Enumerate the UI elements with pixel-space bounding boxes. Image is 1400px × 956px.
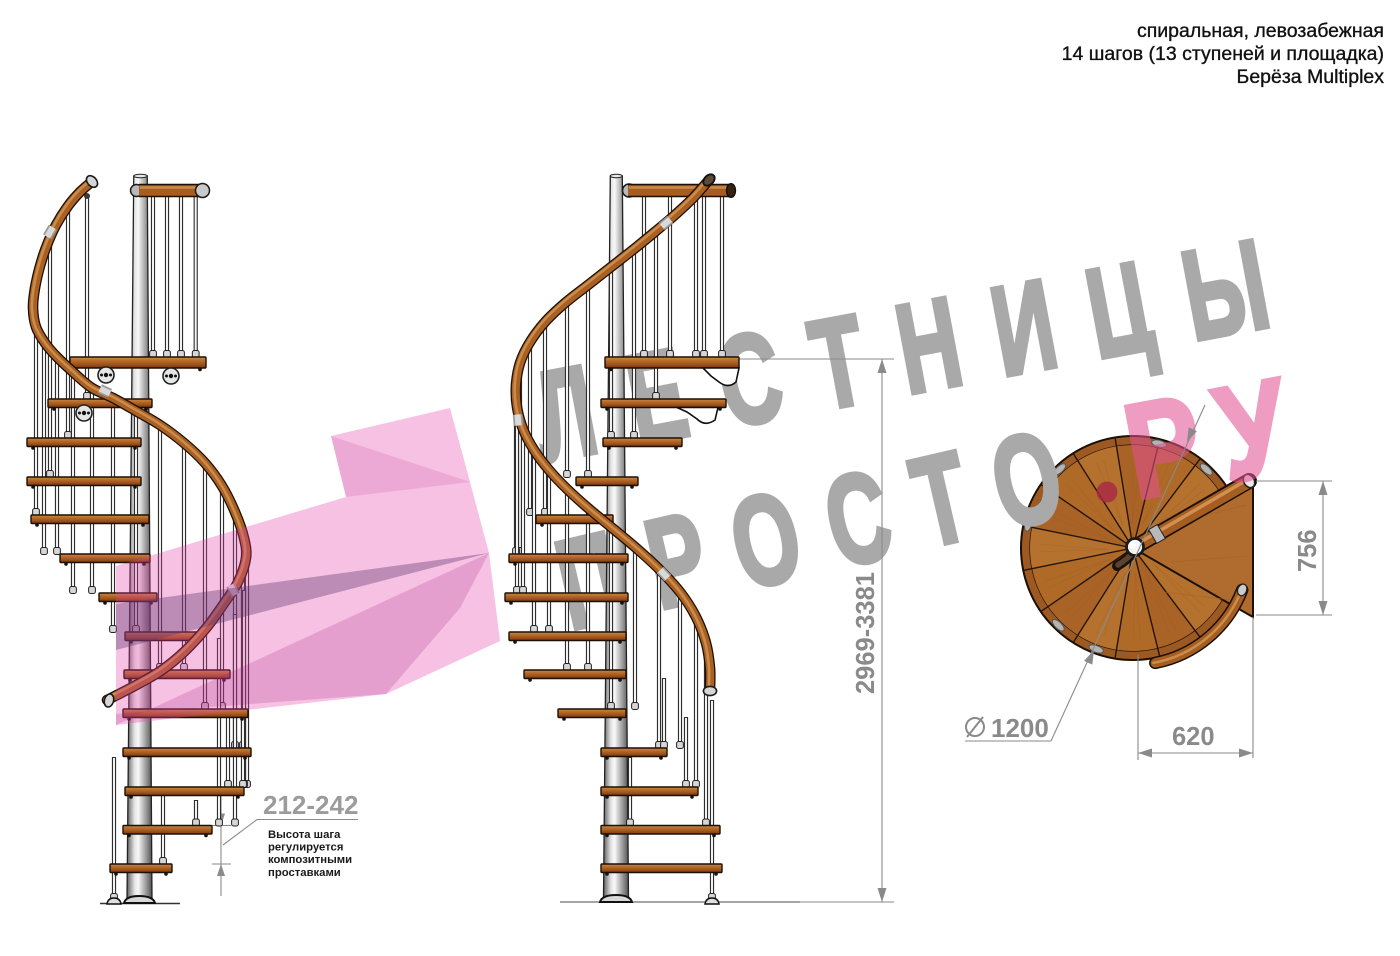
svg-text:1200: 1200 [991, 713, 1049, 743]
svg-text:Берёза Multiplex: Берёза Multiplex [1237, 66, 1385, 88]
svg-text:проставками: проставками [268, 867, 341, 879]
svg-text:620: 620 [1172, 723, 1215, 751]
svg-text:756: 756 [1294, 529, 1322, 572]
svg-text:14 шагов (13 ступеней и площад: 14 шагов (13 ступеней и площадка) [1062, 43, 1384, 65]
svg-text:спиральная, левозабежная: спиральная, левозабежная [1137, 20, 1384, 42]
svg-text:212-242: 212-242 [263, 790, 358, 820]
svg-text:композитными: композитными [268, 854, 352, 866]
svg-text:РУ: РУ [1114, 346, 1321, 527]
svg-text:регулируется: регулируется [268, 842, 343, 854]
svg-text:Высота шага: Высота шага [268, 829, 341, 841]
svg-text:2969-3381: 2969-3381 [852, 572, 880, 694]
